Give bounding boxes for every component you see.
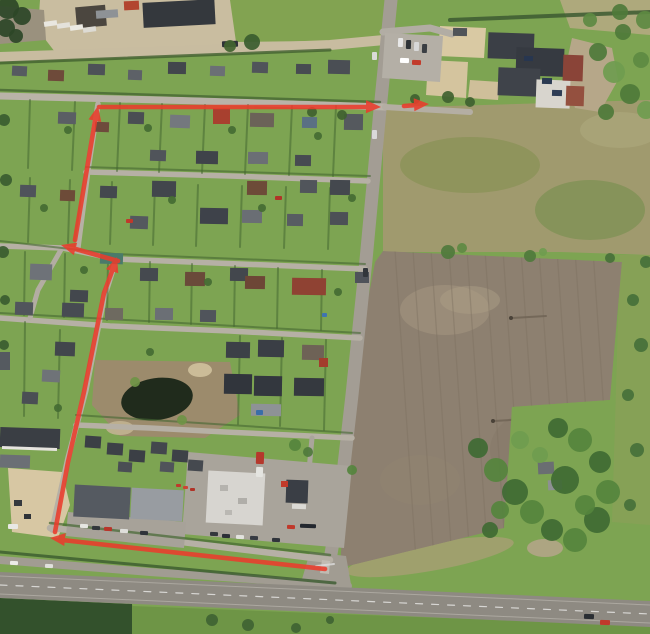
tree — [539, 248, 547, 256]
building — [251, 404, 281, 417]
vehicle — [250, 536, 258, 540]
building — [225, 510, 232, 515]
school-parking — [382, 33, 443, 82]
building — [281, 481, 288, 487]
vehicle — [400, 58, 409, 63]
building — [286, 480, 309, 504]
building — [524, 56, 533, 61]
building — [48, 70, 64, 82]
building — [213, 108, 230, 124]
building — [24, 514, 31, 519]
vehicle — [372, 130, 377, 139]
building — [224, 374, 252, 394]
bottom-forest — [0, 598, 134, 634]
building — [20, 185, 36, 198]
vehicle — [256, 452, 264, 464]
tree — [130, 377, 140, 387]
vehicle — [406, 40, 411, 49]
tree — [491, 501, 509, 519]
building — [151, 441, 168, 454]
tree — [457, 243, 467, 253]
building — [150, 150, 166, 162]
tree — [568, 428, 592, 452]
vehicle — [584, 614, 594, 619]
aerial-map-view — [0, 0, 650, 634]
building — [118, 462, 133, 473]
hedge — [277, 268, 278, 328]
building — [552, 90, 562, 96]
vehicle — [8, 524, 18, 529]
tree — [40, 204, 48, 212]
building — [566, 86, 585, 107]
building — [296, 64, 311, 74]
building — [200, 310, 216, 322]
building — [130, 488, 184, 522]
tree — [244, 34, 260, 50]
tree — [348, 194, 356, 202]
building — [152, 181, 176, 197]
building — [563, 55, 584, 82]
tree — [228, 126, 236, 134]
vehicle — [272, 538, 280, 542]
building — [245, 276, 265, 289]
tree — [634, 338, 648, 352]
tree — [289, 439, 301, 451]
building — [62, 303, 84, 318]
building — [319, 358, 328, 367]
vehicle — [104, 527, 112, 531]
tree — [54, 404, 62, 412]
building — [250, 113, 274, 127]
tree — [603, 61, 625, 83]
building — [295, 155, 311, 166]
tree — [551, 466, 579, 494]
tree — [622, 389, 634, 401]
tree — [168, 196, 176, 204]
building — [129, 449, 146, 462]
vehicle — [222, 534, 230, 538]
building — [30, 264, 53, 281]
tree — [620, 84, 640, 104]
tree — [615, 24, 631, 40]
tree — [598, 104, 614, 120]
building — [258, 340, 284, 357]
tree — [326, 616, 334, 624]
building — [206, 471, 266, 526]
building — [96, 9, 119, 19]
tree — [520, 500, 544, 524]
building — [85, 435, 102, 448]
building — [172, 449, 189, 462]
tree — [482, 522, 498, 538]
vehicle — [398, 38, 403, 47]
vehicle — [10, 561, 18, 565]
tree — [224, 40, 236, 52]
building — [294, 378, 324, 397]
building — [95, 122, 109, 132]
building — [128, 70, 142, 80]
building — [328, 60, 350, 74]
tree — [596, 480, 620, 504]
vehicle — [300, 524, 316, 529]
aerial-photo — [0, 0, 650, 634]
tree — [144, 124, 152, 132]
tree — [548, 418, 568, 438]
vehicle — [140, 531, 148, 535]
tree — [630, 443, 644, 457]
vehicle — [372, 52, 377, 60]
tree — [442, 91, 454, 103]
building — [140, 268, 158, 281]
building — [60, 190, 75, 202]
vehicle — [363, 268, 368, 277]
vehicle — [600, 620, 610, 625]
building — [287, 214, 303, 226]
tree — [583, 13, 597, 27]
building — [300, 180, 317, 193]
tree — [206, 614, 218, 626]
tree — [502, 479, 528, 505]
tree — [314, 132, 322, 140]
tree — [589, 43, 607, 61]
vehicle — [176, 484, 181, 487]
vehicle — [92, 526, 100, 530]
building — [542, 78, 552, 84]
tree — [589, 451, 611, 473]
building — [330, 212, 348, 225]
tree — [80, 266, 88, 274]
vehicle — [414, 42, 419, 51]
vehicle — [256, 410, 263, 415]
tree — [177, 415, 187, 425]
playground-sand-3 — [468, 80, 500, 100]
tree — [13, 7, 31, 25]
building — [128, 112, 144, 125]
tree — [146, 348, 154, 356]
tree — [0, 295, 10, 305]
tree — [627, 294, 639, 306]
building — [226, 342, 250, 358]
building — [107, 442, 124, 455]
building — [252, 62, 268, 74]
building — [188, 459, 204, 471]
vehicle — [236, 535, 244, 539]
building — [58, 112, 76, 125]
tree — [303, 447, 313, 457]
tree — [291, 623, 301, 633]
building — [160, 462, 175, 473]
building — [330, 180, 350, 195]
tree — [465, 97, 475, 107]
tree — [347, 465, 357, 475]
tree — [563, 528, 587, 552]
building — [196, 151, 218, 164]
vehicle — [120, 529, 128, 533]
tree — [258, 204, 266, 212]
building — [248, 152, 268, 164]
tree — [242, 619, 254, 631]
building — [142, 0, 215, 28]
building — [292, 278, 326, 296]
building — [88, 64, 105, 76]
tree — [441, 245, 455, 259]
tree — [9, 29, 23, 43]
vehicle — [190, 488, 195, 491]
building — [15, 302, 33, 316]
building — [155, 308, 173, 320]
building — [22, 392, 39, 405]
vehicle — [287, 525, 295, 529]
building — [220, 485, 228, 491]
tree — [337, 110, 347, 120]
tree — [524, 250, 536, 262]
tree — [204, 278, 212, 286]
building — [0, 427, 60, 449]
building — [242, 210, 262, 223]
building — [538, 462, 555, 475]
tree — [605, 253, 615, 263]
building — [200, 208, 228, 224]
building — [302, 345, 324, 360]
vehicle — [210, 532, 218, 536]
building — [302, 117, 317, 128]
building — [292, 504, 306, 509]
building — [70, 290, 88, 303]
tree — [624, 499, 636, 511]
building — [170, 115, 190, 129]
vehicle — [183, 486, 188, 489]
building — [0, 454, 30, 468]
building — [453, 28, 467, 36]
vehicle — [256, 467, 263, 477]
building — [168, 62, 186, 74]
building — [55, 342, 75, 357]
building — [42, 370, 61, 383]
building — [498, 67, 541, 96]
tree — [541, 519, 563, 541]
vehicle — [80, 524, 88, 528]
vehicle — [45, 564, 53, 568]
building — [185, 272, 205, 286]
building — [100, 186, 117, 199]
building — [0, 352, 10, 370]
tree — [633, 52, 649, 68]
tree — [468, 438, 488, 458]
building — [254, 376, 282, 396]
tree — [0, 174, 12, 186]
tree — [334, 288, 342, 296]
vehicle — [412, 60, 421, 65]
tree — [532, 447, 548, 463]
tree — [575, 495, 595, 515]
building — [124, 1, 139, 11]
vehicle — [422, 44, 427, 53]
building — [210, 66, 225, 77]
building — [14, 500, 22, 506]
vehicle — [322, 313, 327, 317]
building — [238, 498, 247, 504]
vehicle — [126, 219, 133, 223]
tree — [511, 431, 529, 449]
tree — [64, 126, 72, 134]
tree — [612, 4, 628, 20]
building — [247, 181, 267, 195]
building — [12, 66, 28, 77]
building — [105, 308, 123, 320]
tree — [484, 458, 508, 482]
building — [73, 485, 131, 520]
vehicle — [275, 196, 282, 200]
